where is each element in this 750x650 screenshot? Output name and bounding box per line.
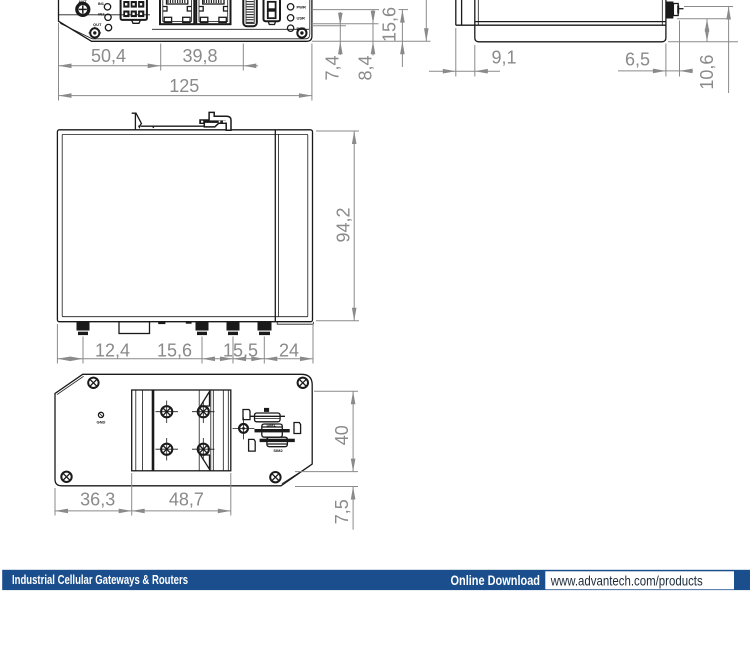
svg-text:IN2: IN2: [98, 12, 105, 17]
svg-text:USR: USR: [297, 15, 306, 20]
svg-text:10,6: 10,6: [697, 55, 717, 90]
svg-text:9,1: 9,1: [491, 48, 516, 68]
svg-text:GND: GND: [97, 420, 106, 425]
svg-text:7,4: 7,4: [323, 55, 343, 80]
svg-text:24: 24: [279, 341, 299, 361]
svg-text:15,5: 15,5: [223, 341, 258, 361]
svg-text:15,6: 15,6: [380, 7, 400, 42]
svg-text:Online Download: Online Download: [451, 573, 541, 588]
svg-text:6,5: 6,5: [625, 50, 650, 70]
svg-text:OUT: OUT: [93, 22, 102, 27]
svg-text:Industrial Cellular Gateways &: Industrial Cellular Gateways & Routers: [12, 573, 188, 587]
svg-text:IN1: IN1: [98, 1, 105, 6]
svg-text:125: 125: [169, 76, 199, 96]
svg-text:8,4: 8,4: [356, 55, 376, 80]
svg-text:36,3: 36,3: [80, 490, 115, 510]
svg-text:50,4: 50,4: [91, 46, 126, 66]
svg-text:39,8: 39,8: [182, 46, 217, 66]
svg-text:48,7: 48,7: [169, 490, 204, 510]
svg-text:94,2: 94,2: [334, 207, 354, 242]
svg-text:15,6: 15,6: [157, 341, 192, 361]
svg-text:12,4: 12,4: [95, 341, 130, 361]
svg-text:40: 40: [332, 425, 352, 445]
svg-text:PWR: PWR: [297, 4, 306, 9]
svg-text:SIM2: SIM2: [273, 448, 283, 453]
svg-text:www.advantech.com/products: www.advantech.com/products: [550, 572, 703, 588]
svg-text:7,5: 7,5: [332, 499, 352, 524]
